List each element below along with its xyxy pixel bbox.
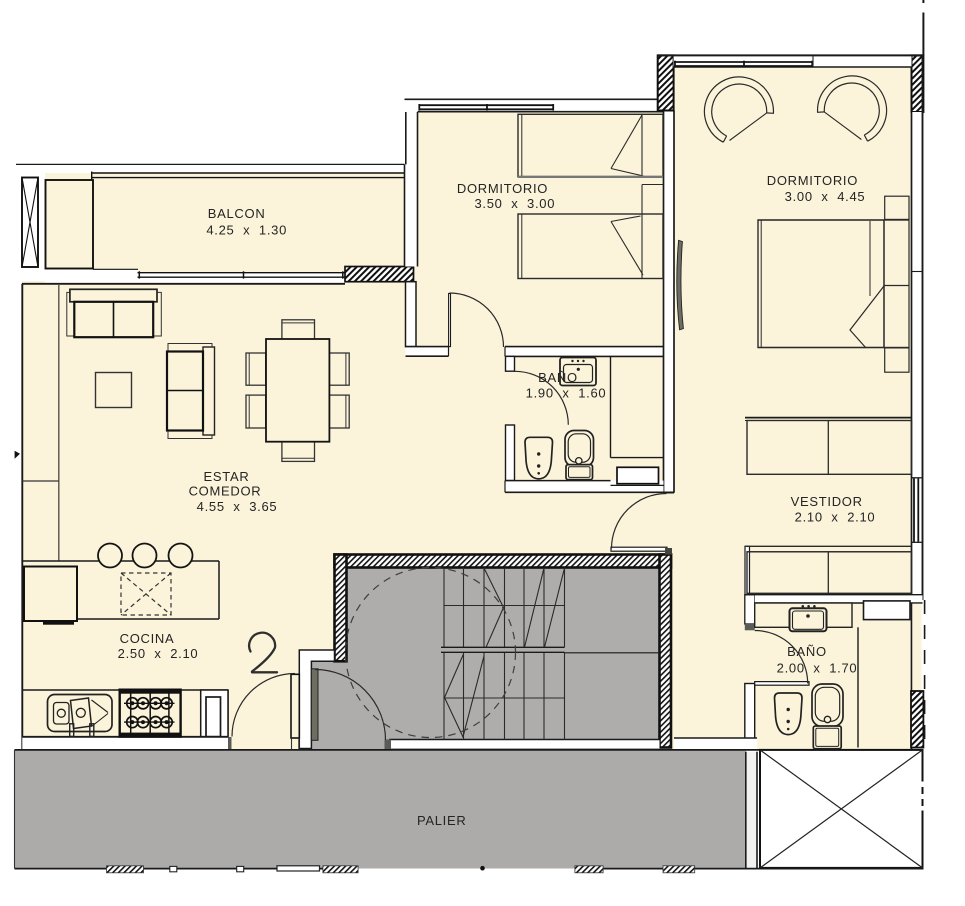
svg-text:4.25 x 1.30: 4.25 x 1.30	[206, 223, 287, 238]
svg-text:2.10 x 2.10: 2.10 x 2.10	[795, 510, 876, 525]
svg-text:COCINA: COCINA	[120, 631, 175, 646]
svg-text:4.55 x 3.65: 4.55 x 3.65	[197, 499, 278, 514]
svg-text:BAÑO: BAÑO	[538, 370, 578, 385]
svg-text:VESTIDOR: VESTIDOR	[791, 494, 863, 509]
svg-text:2.50 x 2.10: 2.50 x 2.10	[118, 646, 199, 661]
svg-text:DORMITORIO: DORMITORIO	[767, 173, 858, 188]
svg-text:ESTAR: ESTAR	[204, 469, 250, 484]
svg-text:BALCON: BALCON	[208, 206, 266, 221]
svg-text:3.00 x 4.45: 3.00 x 4.45	[785, 189, 866, 204]
svg-text:3.50 x 3.00: 3.50 x 3.00	[474, 196, 555, 211]
svg-text:PALIER: PALIER	[417, 813, 466, 828]
svg-text:1.90 x 1.60: 1.90 x 1.60	[526, 386, 607, 401]
svg-text:DORMITORIO: DORMITORIO	[457, 181, 548, 196]
svg-text:2.00 x 1.70: 2.00 x 1.70	[777, 661, 858, 676]
svg-text:COMEDOR: COMEDOR	[189, 484, 262, 499]
svg-text:BAÑO: BAÑO	[787, 644, 827, 659]
